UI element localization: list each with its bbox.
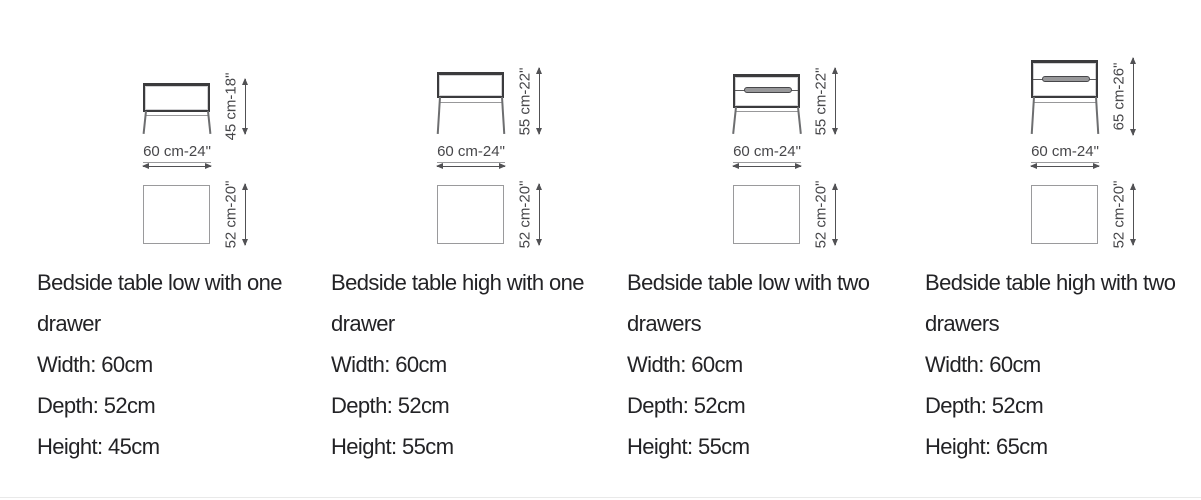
product-title-line1: Bedside table high with one xyxy=(331,262,621,303)
leg-rail-line xyxy=(1033,102,1097,103)
width-dimension-label: 60 cm-24" xyxy=(403,143,539,160)
top-view-outline xyxy=(733,185,800,244)
drawer-handle xyxy=(1042,76,1090,82)
depth-dimension-arrow xyxy=(539,184,540,245)
height-dimension-arrow xyxy=(245,79,246,134)
product-column-low-one-drawer: 45 cm-18" 60 cm-24" 52 cm-20" Bedside ta… xyxy=(27,0,321,500)
product-width-spec: Width: 60cm xyxy=(37,344,327,385)
product-width-spec: Width: 60cm xyxy=(627,344,917,385)
table-right-leg xyxy=(797,107,802,134)
product-height-spec: Height: 45cm xyxy=(37,426,327,467)
product-depth-spec: Depth: 52cm xyxy=(925,385,1201,426)
table-left-leg xyxy=(732,107,737,134)
product-description: Bedside table high with two drawers Widt… xyxy=(925,262,1201,467)
width-dimension-label: 60 cm-24" xyxy=(109,143,245,160)
product-title-line1: Bedside table low with two xyxy=(627,262,917,303)
depth-dimension-arrow xyxy=(245,184,246,245)
product-column-low-two-drawers: 55 cm-22" 60 cm-24" 52 cm-20" Bedside ta… xyxy=(617,0,911,500)
product-title-line2: drawers xyxy=(925,303,1201,344)
width-dimension-rule xyxy=(733,162,801,163)
product-depth-spec: Depth: 52cm xyxy=(331,385,621,426)
product-height-spec: Height: 55cm xyxy=(331,426,621,467)
width-dimension-rule xyxy=(1031,162,1099,163)
table-body-outline xyxy=(1031,60,1098,98)
product-column-high-two-drawers: 65 cm-26" 60 cm-24" 52 cm-20" Bedside ta… xyxy=(915,0,1201,500)
product-title-line2: drawers xyxy=(627,303,917,344)
width-dimension-arrow xyxy=(143,166,211,167)
table-body-outline xyxy=(733,74,800,108)
leg-rail-line xyxy=(145,115,209,116)
depth-dimension-arrow xyxy=(835,184,836,245)
table-left-leg xyxy=(437,97,441,134)
table-right-leg xyxy=(207,111,211,134)
top-view-outline xyxy=(143,185,210,244)
width-dimension-arrow xyxy=(437,166,505,167)
product-title-line2: drawer xyxy=(37,303,327,344)
width-dimension-label: 60 cm-24" xyxy=(997,143,1133,160)
product-width-spec: Width: 60cm xyxy=(331,344,621,385)
product-depth-spec: Depth: 52cm xyxy=(37,385,327,426)
width-dimension-arrow xyxy=(1031,166,1099,167)
product-column-high-one-drawer: 55 cm-22" 60 cm-24" 52 cm-20" Bedside ta… xyxy=(321,0,615,500)
leg-rail-line xyxy=(439,102,503,103)
table-left-leg xyxy=(1031,97,1035,134)
table-body-outline xyxy=(143,83,210,112)
drawer-handle xyxy=(744,87,792,93)
width-dimension-rule xyxy=(437,162,505,163)
page-bottom-divider xyxy=(0,497,1201,498)
top-view-outline xyxy=(1031,185,1098,244)
table-right-leg xyxy=(1095,97,1099,134)
product-height-spec: Height: 65cm xyxy=(925,426,1201,467)
leg-rail-line xyxy=(735,111,799,112)
product-title-line1: Bedside table high with two xyxy=(925,262,1201,303)
product-height-spec: Height: 55cm xyxy=(627,426,917,467)
table-left-leg xyxy=(143,111,147,134)
product-title-line2: drawer xyxy=(331,303,621,344)
height-dimension-arrow xyxy=(1133,58,1134,135)
product-description: Bedside table high with one drawer Width… xyxy=(331,262,621,467)
product-width-spec: Width: 60cm xyxy=(925,344,1201,385)
width-dimension-label: 60 cm-24" xyxy=(699,143,835,160)
width-dimension-arrow xyxy=(733,166,801,167)
height-dimension-arrow xyxy=(835,68,836,134)
top-view-outline xyxy=(437,185,504,244)
table-right-leg xyxy=(501,97,505,134)
product-description: Bedside table low with one drawer Width:… xyxy=(37,262,327,467)
product-title-line1: Bedside table low with one xyxy=(37,262,327,303)
product-depth-spec: Depth: 52cm xyxy=(627,385,917,426)
height-dimension-arrow xyxy=(539,68,540,134)
table-body-outline xyxy=(437,72,504,98)
product-description: Bedside table low with two drawers Width… xyxy=(627,262,917,467)
depth-dimension-arrow xyxy=(1133,184,1134,245)
width-dimension-rule xyxy=(143,162,211,163)
